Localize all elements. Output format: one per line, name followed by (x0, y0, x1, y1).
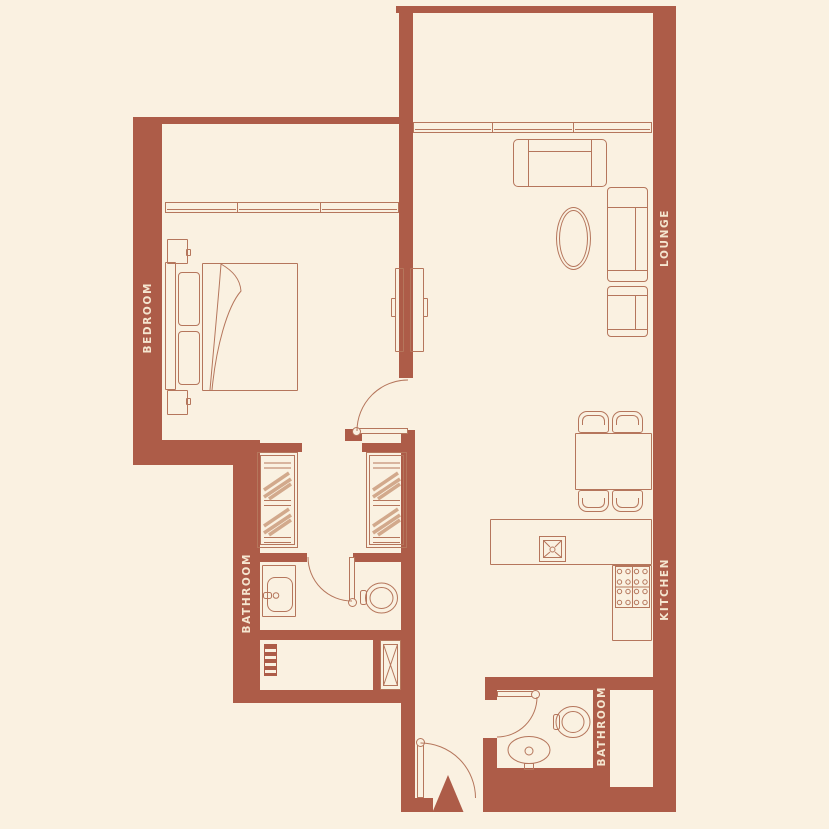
lounge-window-segment (413, 122, 493, 133)
bed-mattress (202, 263, 298, 391)
sofa-armrest-line (591, 140, 592, 186)
bedroom-window-segment (165, 202, 238, 213)
kitchen-label: KITCHEN (659, 558, 671, 621)
lounge-label: LOUNGE (659, 209, 671, 267)
toilet-bathroom1 (361, 583, 398, 613)
wall-top (396, 6, 676, 13)
lounge-window-segment (573, 122, 652, 133)
washer-unit (264, 644, 277, 676)
lounge-window-segment (492, 122, 574, 133)
kitchen-counter (490, 519, 652, 565)
tv-bracket-bedroom (391, 298, 396, 317)
bathroom2-door-knob (531, 690, 540, 699)
nightstand-top (167, 239, 188, 264)
nightstand-top-knob (186, 249, 191, 256)
dining-chair (612, 490, 643, 512)
wall-bedroom-bottom (133, 440, 260, 465)
armchair-line (608, 329, 647, 330)
kitchen-label-box: KITCHEN (653, 556, 676, 622)
bathroom2-door-arc (497, 697, 537, 737)
bathroom1-label: BATHROOM (241, 553, 253, 633)
wall-corridor (401, 430, 415, 812)
dining-table (575, 433, 652, 490)
entry-door-leaf (417, 742, 424, 798)
bathroom2-label-box: BATHROOM (593, 689, 610, 763)
tv-bracket-lounge (423, 298, 428, 317)
bedroom-label-box: BEDROOM (133, 270, 162, 366)
chaise-back-line (635, 208, 636, 270)
wall-bathroom1-bottom (260, 630, 413, 640)
bedroom-window-segment (237, 202, 321, 213)
wall-shaft-left (373, 640, 380, 690)
entry-door-knob (416, 738, 425, 747)
entrance-arrow-icon (433, 775, 464, 812)
wall-closet-top-left (260, 443, 302, 452)
bathroom1-door-arc (308, 557, 352, 601)
nightstand-bottom (167, 390, 188, 415)
vanity-basin (267, 577, 293, 612)
bedroom-window-segment (320, 202, 399, 213)
chaise-sofa (607, 187, 648, 282)
service-shaft (381, 641, 401, 690)
bed-pillow (178, 331, 200, 385)
wardrobe-left (258, 453, 298, 548)
bedroom-door-leaf (357, 428, 408, 434)
sofa-armrest-line (528, 140, 529, 186)
wall-niche-bottom (610, 787, 676, 812)
wall-bathroom2-left-upper (485, 677, 497, 700)
armchair-back-line (635, 296, 636, 329)
wall-bathroom2-top (485, 677, 653, 690)
bed-headboard (165, 262, 176, 390)
bedroom-label: BEDROOM (142, 282, 154, 353)
tv-panel-bedroom (395, 268, 404, 352)
floor-plan: BEDROOM LOUNGE KITCHEN BATHROOM BATHROOM (0, 0, 829, 829)
bathroom2-label: BATHROOM (596, 686, 608, 766)
dining-chair (578, 490, 609, 512)
wall-laundry-bottom (233, 690, 415, 703)
chaise-armrest-line (608, 270, 647, 271)
bathroom1-door-leaf (349, 557, 355, 601)
coffee-table (556, 207, 591, 270)
dining-chair (612, 411, 643, 433)
dining-chair (578, 411, 609, 433)
wall-bathroom1-top-right (353, 553, 413, 562)
sofa-back-line (529, 151, 591, 152)
nightstand-bottom-knob (186, 398, 191, 405)
armchair-line (608, 295, 647, 296)
lounge-label-box: LOUNGE (653, 206, 676, 270)
bathroom1-label-box: BATHROOM (233, 556, 260, 630)
bed-pillow (178, 272, 200, 326)
wall-bedroom-top (133, 117, 399, 124)
wall-bathroom2-left-lower (483, 738, 497, 812)
tv-panel-lounge (410, 268, 424, 352)
bathroom1-door-knob (348, 598, 357, 607)
toilet-bathroom2 (554, 707, 591, 738)
entry-door-arc (421, 743, 476, 798)
pedestal-sink-bathroom2 (508, 737, 550, 770)
kitchen-counter-return (612, 565, 652, 641)
bedroom-door-knob (352, 427, 361, 436)
bedroom-door-arc (357, 380, 408, 431)
wall-right (653, 6, 676, 812)
coffee-table-inner (559, 210, 588, 267)
chaise-armrest-line (608, 207, 647, 208)
wall-entry-stub (401, 798, 433, 812)
